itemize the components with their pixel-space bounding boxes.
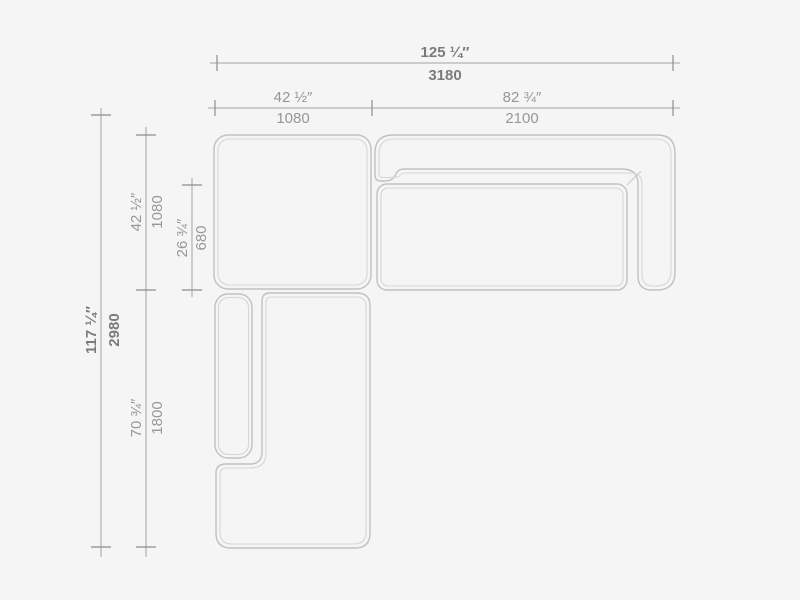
sofa-dimension-drawing: 125 ¼″ 3180 42 ½″ 1080 82 ¾″ 2100 117 ¼″… [0, 0, 800, 600]
seat-depth-mm: 680 [193, 225, 210, 250]
module-b-width-mm: 2100 [505, 110, 538, 127]
chaise-length-mm: 1800 [149, 401, 166, 434]
module-a-width-mm: 1080 [276, 110, 309, 127]
overall-width-mm: 3180 [428, 67, 461, 84]
sofa-right-module [375, 135, 675, 290]
chaise-length-inches: 70 ¾″ [128, 398, 145, 437]
drawing-canvas: 125 ¼″ 3180 42 ½″ 1080 82 ¾″ 2100 117 ¼″… [0, 0, 800, 600]
module-a-width-inches: 42 ½″ [274, 89, 313, 106]
sofa-corner-module [214, 135, 371, 289]
dimension-overall-depth: 117 ¼″ 2980 [83, 108, 123, 557]
corner-module-outline [214, 135, 371, 289]
dimension-overall-width: 125 ¼″ 3180 [210, 44, 680, 84]
module-b-width-inches: 82 ¾″ [503, 89, 542, 106]
overall-depth-inches: 117 ¼″ [83, 306, 100, 354]
right-module-seat-cushion [377, 184, 627, 290]
dimension-module-widths: 42 ½″ 1080 82 ¾″ 2100 [208, 89, 680, 127]
dimension-module-depths: 42 ½″ 1080 70 ¾″ 1800 [128, 127, 166, 557]
overall-width-inches: 125 ¼″ [421, 44, 470, 61]
dimension-seat-depth: 26 ¾″ 680 [174, 178, 210, 297]
seat-depth-inches: 26 ¾″ [174, 218, 191, 257]
module-a-depth-mm: 1080 [149, 195, 166, 228]
overall-depth-mm: 2980 [106, 313, 123, 346]
sofa-chaise-module [215, 293, 370, 548]
chaise-back-cushion [215, 294, 252, 458]
module-a-depth-inches: 42 ½″ [128, 192, 145, 231]
